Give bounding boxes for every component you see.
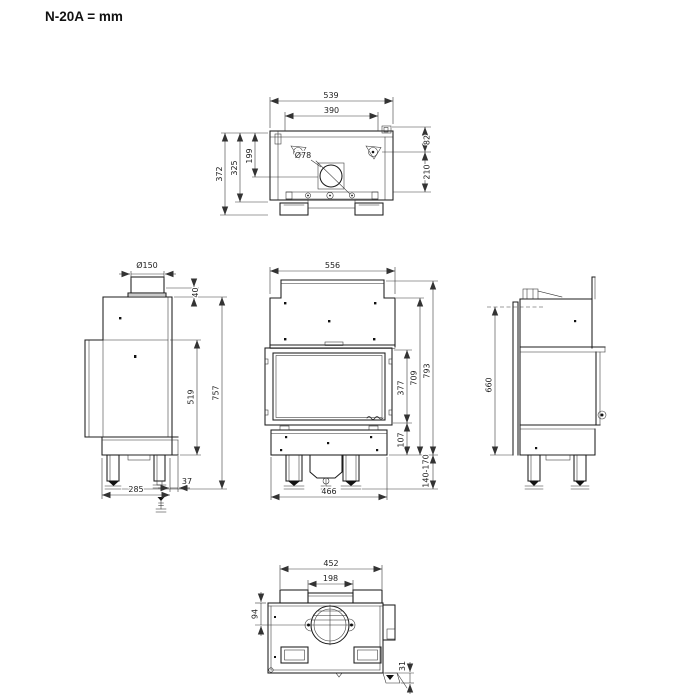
dim-front-glass-height: 377: [397, 380, 406, 395]
view-side-right: 660: [485, 277, 607, 489]
dim-top-depth-body: 325: [230, 160, 239, 175]
right-view-details: [520, 277, 606, 489]
dim-left-base-depth: 285: [128, 485, 143, 494]
dim-top-flue-diameter: Ø78: [295, 150, 311, 160]
dim-front-base-height: 107: [397, 432, 406, 447]
dim-left-glass-height: 519: [187, 389, 196, 404]
drawing-svg: 539 390 Ø78 199 325 372 82 210: [0, 0, 693, 700]
dim-front-height-total: 793: [423, 363, 432, 378]
dim-bottom-width-total: 452: [323, 559, 338, 568]
dim-front-base-width: 466: [321, 487, 336, 496]
right-view-dim-labels: 660: [485, 377, 494, 392]
dim-top-depth-flue-center: 199: [245, 148, 254, 163]
technical-drawing-page: N-20A = mm: [0, 0, 693, 700]
front-view-outline: [265, 280, 395, 481]
dim-left-collar: 40: [191, 287, 200, 297]
bottom-view-outline: [268, 590, 395, 673]
dim-front-leg-range: 140-170: [422, 454, 431, 487]
top-view-details: [270, 126, 393, 208]
dim-right-height: 660: [485, 377, 494, 392]
view-bottom: 452 198 94 31: [251, 559, 415, 694]
dim-bottom-intake-center: 94: [251, 609, 260, 619]
dim-front-body-height: 709: [410, 370, 419, 385]
left-view-outline: [85, 277, 178, 481]
top-view-outline: [270, 131, 393, 215]
dim-top-width-inner: 390: [324, 106, 339, 115]
view-side-left: Ø150 40 519 757 285 37: [85, 260, 227, 512]
dim-bottom-width-inner: 198: [323, 574, 338, 583]
dim-left-height-total: 757: [212, 385, 221, 400]
dim-bottom-bracket: 31: [398, 661, 407, 671]
right-view-outline: [513, 277, 605, 481]
dim-front-width-total: 556: [325, 261, 340, 270]
bottom-view-dim-lines: [255, 565, 414, 694]
view-front: 556 377 107 709 793 140-170 466: [265, 261, 438, 500]
front-view-details: [265, 284, 395, 490]
front-view-dim-labels: 556 377 107 709 793 140-170 466: [321, 261, 431, 496]
dim-top-rear-offset: 82: [423, 135, 432, 145]
dim-left-rear-gap: 37: [182, 477, 192, 486]
dim-top-depth-total: 372: [215, 166, 224, 181]
dim-left-pipe-diameter: Ø150: [136, 260, 158, 270]
view-top: 539 390 Ø78 199 325 372 82 210: [215, 91, 432, 215]
right-view-dim-lines: [487, 307, 543, 455]
dim-top-side-depth: 210: [423, 164, 432, 179]
dim-top-width-total: 539: [323, 91, 338, 100]
